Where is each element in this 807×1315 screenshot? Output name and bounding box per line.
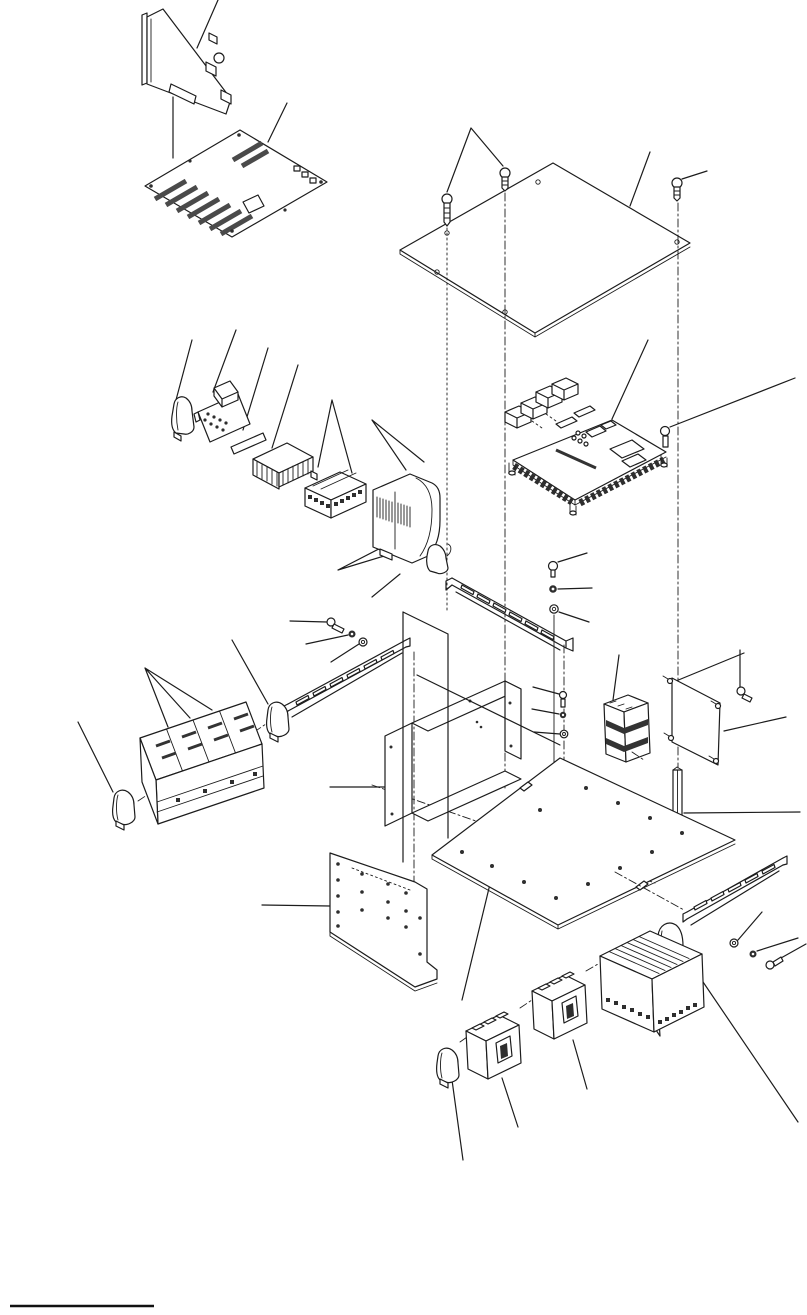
backplane-board bbox=[145, 103, 327, 237]
fastener-set-right bbox=[532, 687, 568, 738]
circuit-breaker-2 bbox=[532, 972, 587, 1039]
terminal-block-large bbox=[600, 931, 704, 1036]
top-cover-plate bbox=[400, 152, 690, 337]
mounting-plate bbox=[262, 853, 437, 991]
marker-plate bbox=[231, 433, 266, 454]
washer-icon bbox=[550, 605, 558, 613]
controller-screw bbox=[661, 378, 796, 447]
relay-socket bbox=[194, 381, 250, 442]
controller-board bbox=[505, 340, 667, 515]
breaker-2-leader bbox=[573, 1040, 587, 1089]
rail-fasteners-left bbox=[290, 618, 367, 662]
screw-icon bbox=[672, 178, 682, 201]
din-rail-left bbox=[284, 638, 410, 717]
screw-icon bbox=[500, 168, 510, 191]
circuit-breaker-1 bbox=[466, 1012, 521, 1127]
spacer-block bbox=[253, 443, 317, 489]
exploded-diagram bbox=[0, 0, 807, 1315]
relay-end-clamp bbox=[172, 397, 194, 441]
screw-icon bbox=[549, 562, 558, 571]
washer-icon bbox=[560, 730, 568, 738]
panel-screw bbox=[737, 650, 752, 702]
washer-icon bbox=[359, 638, 367, 646]
terminal-block-bank bbox=[78, 640, 268, 824]
rail-fasteners-bottom bbox=[730, 912, 806, 969]
exploded-diagram-page bbox=[0, 0, 807, 1315]
breaker-end-clamp bbox=[437, 1048, 463, 1160]
washer-icon bbox=[730, 939, 738, 947]
rail-fasteners-center bbox=[549, 553, 593, 622]
adapter-card bbox=[142, 0, 231, 158]
screw-icon bbox=[560, 692, 567, 699]
stacked-terminal-block bbox=[604, 655, 650, 762]
screw-icon bbox=[442, 194, 452, 226]
side-panel bbox=[663, 653, 786, 765]
mounting-bracket bbox=[330, 681, 521, 826]
